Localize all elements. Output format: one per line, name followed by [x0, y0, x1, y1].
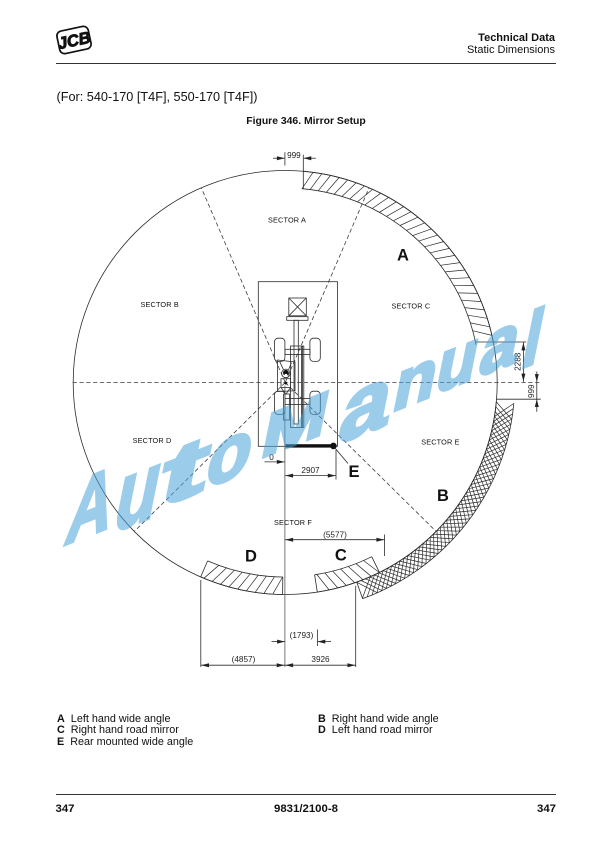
- svg-text:999: 999: [287, 151, 301, 160]
- svg-text:3926: 3926: [311, 655, 330, 664]
- svg-text:D: D: [245, 548, 257, 566]
- svg-text:(4857): (4857): [232, 655, 256, 664]
- svg-text:SECTOR F: SECTOR F: [274, 518, 312, 527]
- svg-text:SECTOR B: SECTOR B: [141, 300, 179, 309]
- svg-text:999: 999: [527, 384, 536, 398]
- svg-text:2907: 2907: [301, 466, 320, 475]
- svg-text:SECTOR E: SECTOR E: [421, 437, 459, 446]
- svg-text:B: B: [437, 487, 449, 505]
- svg-text:(5577): (5577): [323, 530, 347, 539]
- svg-text:E: E: [348, 463, 359, 481]
- svg-text:SECTOR A: SECTOR A: [268, 216, 306, 225]
- svg-text:A: A: [397, 247, 409, 265]
- svg-text:(1793): (1793): [290, 631, 314, 640]
- svg-text:SECTOR C: SECTOR C: [392, 302, 431, 311]
- svg-text:M: M: [256, 376, 335, 472]
- svg-text:C: C: [335, 547, 347, 565]
